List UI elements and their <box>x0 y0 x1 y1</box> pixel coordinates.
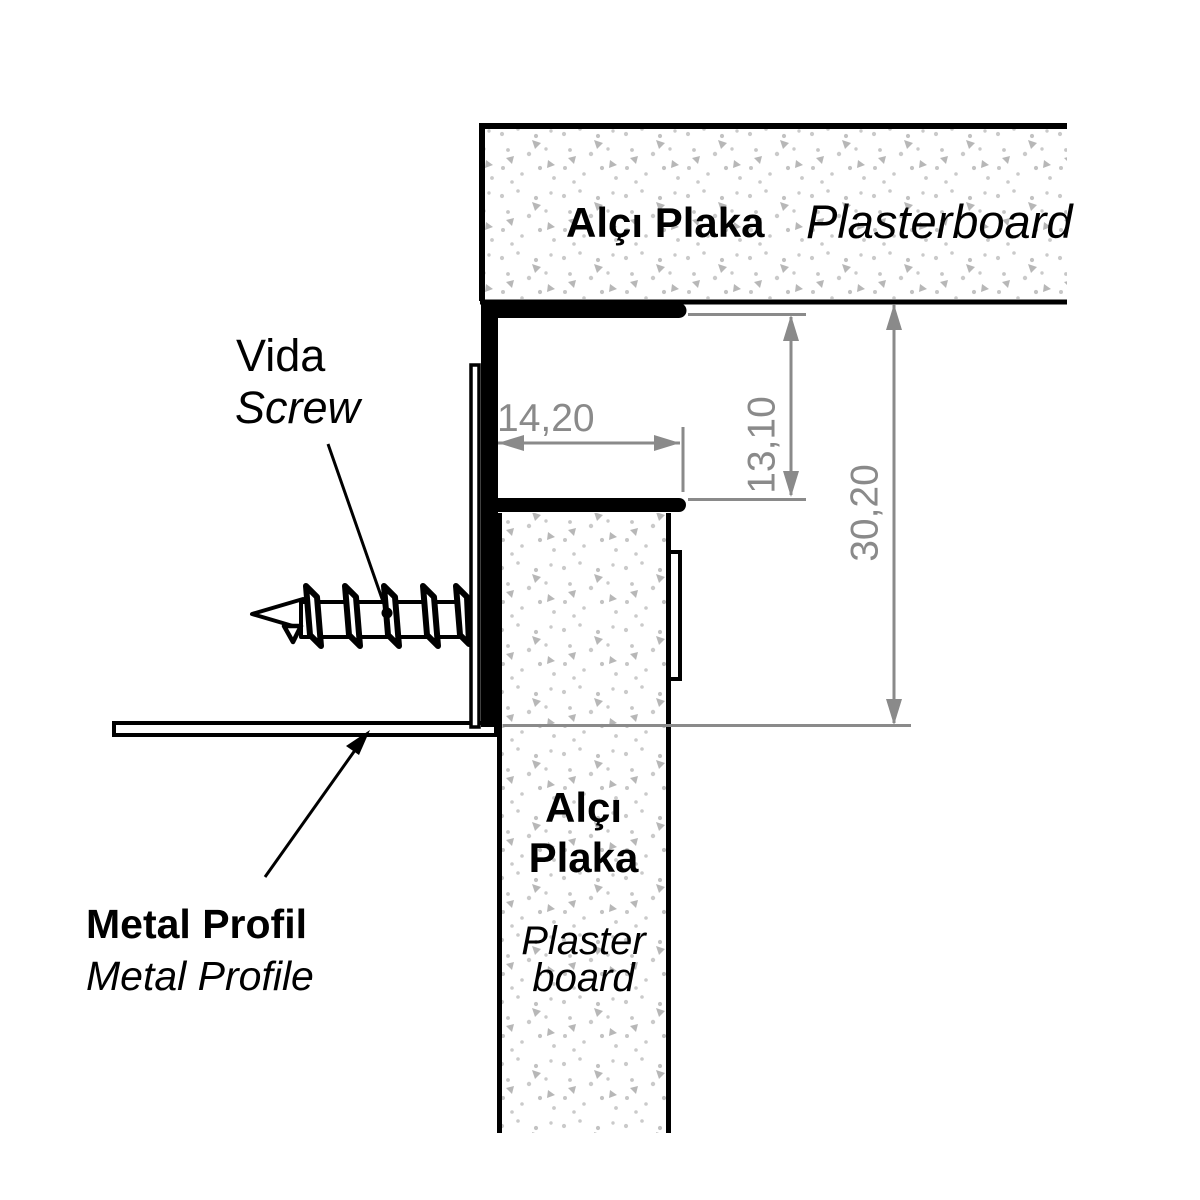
bottom-board-label-english-line2: board <box>501 957 666 999</box>
profile-return-clip <box>669 552 680 679</box>
screw-label-english: Screw <box>235 384 360 431</box>
screw-label-turkish: Vida <box>236 332 325 379</box>
metal-profile-label-turkish: Metal Profil <box>86 903 307 946</box>
dimension-value-reveal-height: 13,10 <box>743 396 784 494</box>
screw-drawing <box>252 586 469 646</box>
bottom-board-label-turkish-line2: Plaka <box>501 836 666 880</box>
top-board-label-turkish: Alçı Plaka <box>566 201 764 245</box>
dimension-value-reveal-depth: 14,20 <box>497 399 595 440</box>
shadow-gap-profile-detail-drawing: Alçı Plaka Plasterboard Vida Screw Metal… <box>0 0 1200 1200</box>
dimension-value-overall-height: 30,20 <box>846 464 887 562</box>
top-board-label-english: Plasterboard <box>806 197 1073 246</box>
bottom-board-label-turkish-line1: Alçı <box>501 786 666 830</box>
detail-drawing-graphics <box>0 0 1200 1200</box>
metal-profile-label-english: Metal Profile <box>86 955 314 998</box>
metal-profile-leader-line <box>265 730 370 877</box>
